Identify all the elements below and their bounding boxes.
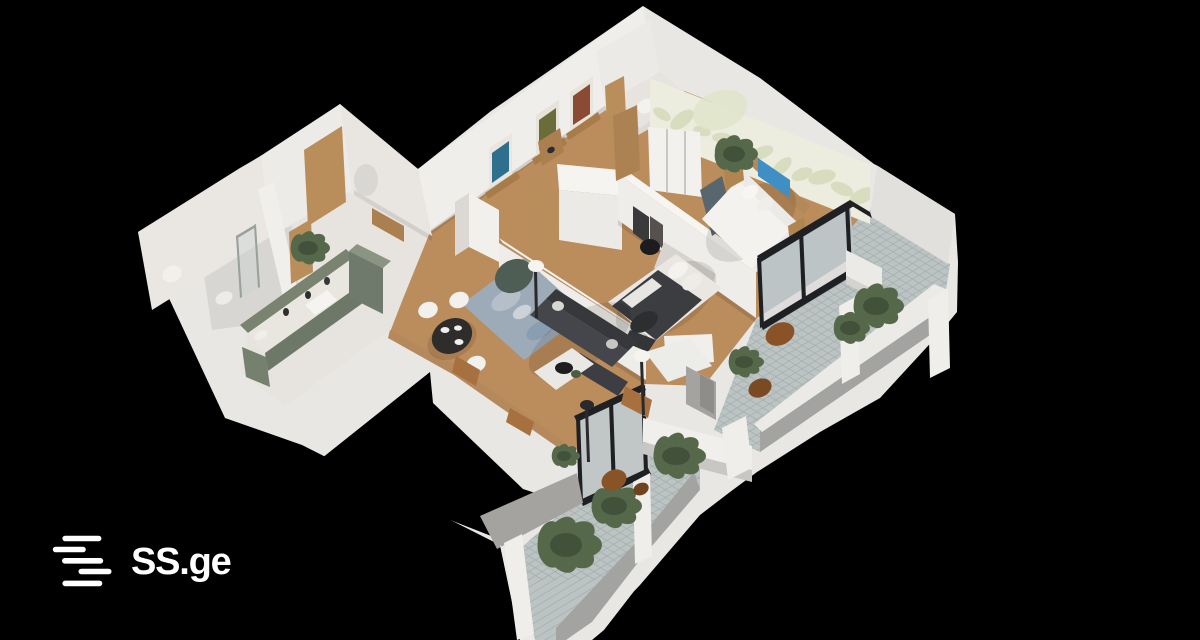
svg-text:SS.ge: SS.ge (131, 541, 231, 583)
